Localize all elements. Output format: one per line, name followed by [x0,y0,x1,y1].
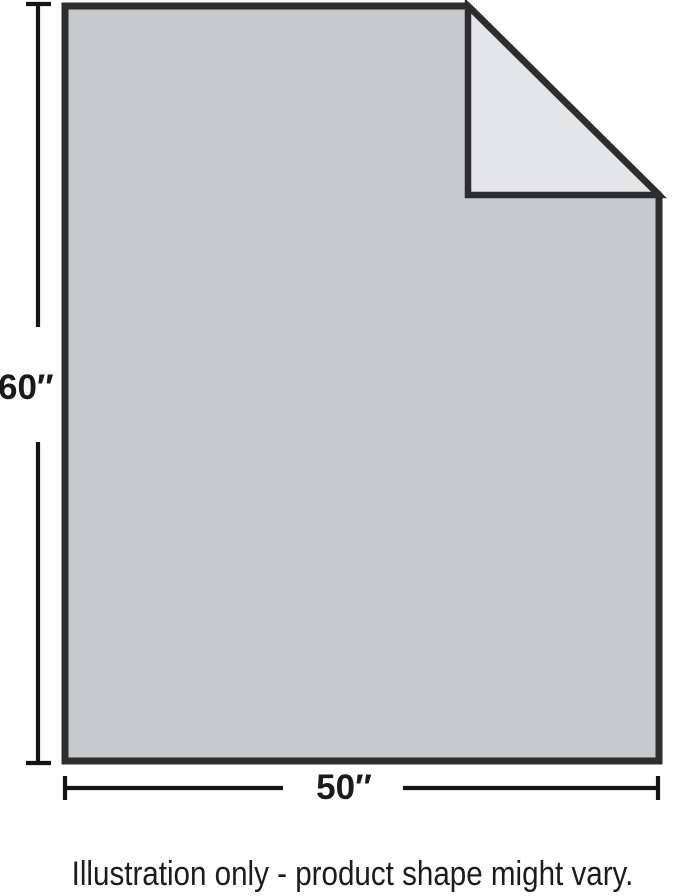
caption: Illustration only - product shape might … [57,854,648,894]
folded-corner [468,6,659,195]
product-illustration: 60″ 50″ Illustration only - product shap… [0,0,679,896]
dimension-diagram [0,0,679,896]
height-label: 60″ [0,370,58,405]
width-label: 50″ [294,770,394,805]
